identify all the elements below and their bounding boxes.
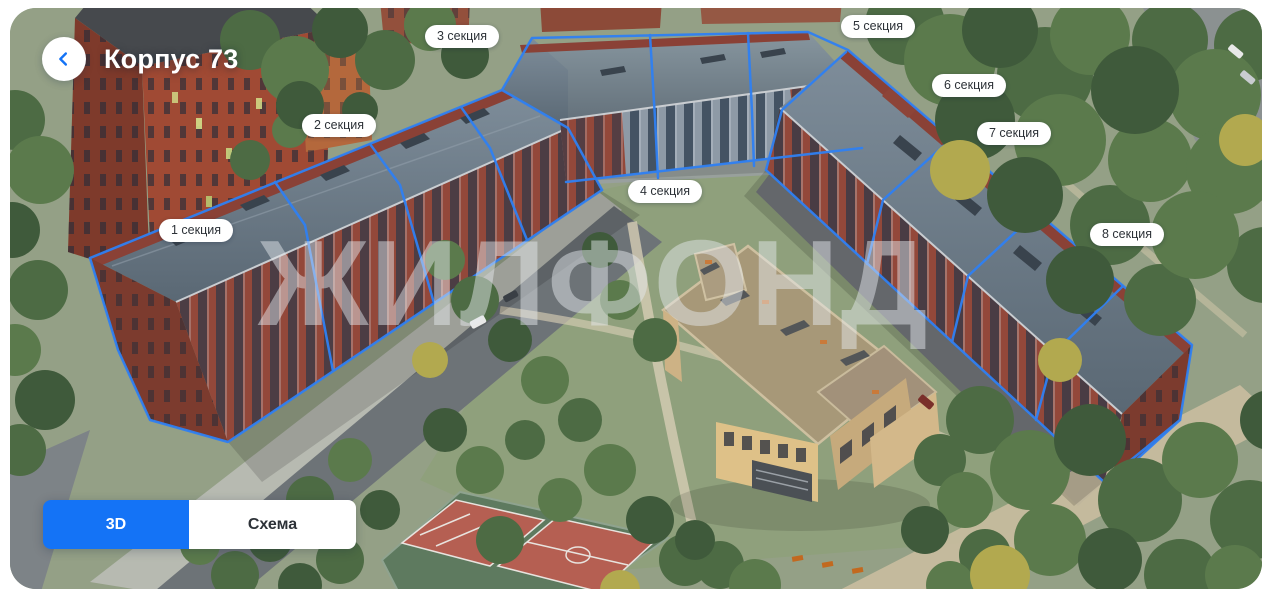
back-button[interactable]	[42, 37, 86, 81]
section-label-3[interactable]: 3 секция	[425, 25, 499, 48]
section-label-8[interactable]: 8 секция	[1090, 223, 1164, 246]
toggle-3d-button[interactable]: 3D	[43, 500, 189, 549]
section-label-5[interactable]: 5 секция	[841, 15, 915, 38]
chevron-left-icon	[53, 48, 75, 70]
view-mode-toggle: 3D Схема	[43, 500, 356, 549]
section-label-2[interactable]: 2 секция	[302, 114, 376, 137]
section-label-4[interactable]: 4 секция	[628, 180, 702, 203]
page: ЖИЛФОНД Корпус 73 1 секция 2 секция 3 се…	[0, 0, 1280, 595]
section-label-1[interactable]: 1 секция	[159, 219, 233, 242]
toggle-schema-button[interactable]: Схема	[189, 500, 356, 549]
section-label-6[interactable]: 6 секция	[932, 74, 1006, 97]
section-label-7[interactable]: 7 секция	[977, 122, 1051, 145]
page-title: Корпус 73	[104, 44, 238, 75]
